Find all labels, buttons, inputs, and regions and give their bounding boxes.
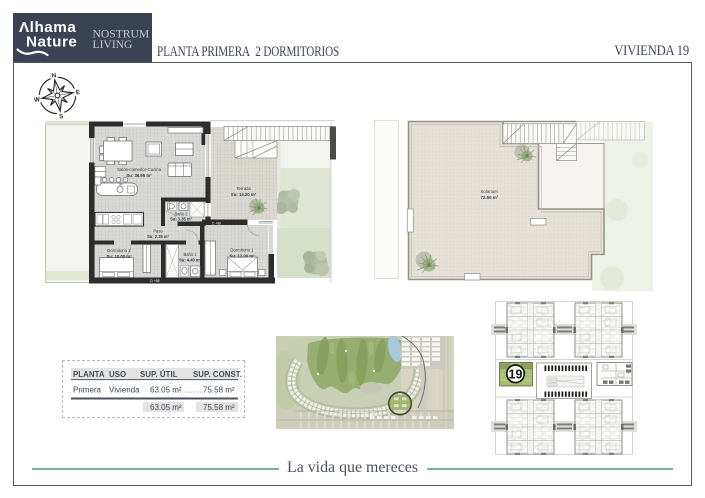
- svg-text:.............: .............: [175, 386, 204, 395]
- svg-text:Baño 1: Baño 1: [184, 252, 198, 257]
- svg-text:75.58 m²: 75.58 m²: [203, 403, 235, 412]
- svg-text:Nature: Nature: [26, 34, 77, 51]
- svg-text:Su: 10.00 m²: Su: 10.00 m²: [106, 254, 132, 259]
- svg-text:Paso: Paso: [153, 229, 163, 234]
- svg-text:Su: 12.00 m²: Su: 12.00 m²: [229, 253, 255, 258]
- svg-text:19: 19: [509, 368, 523, 382]
- svg-text:Solarium: Solarium: [481, 189, 499, 194]
- svg-text:72.50 m²: 72.50 m²: [481, 195, 499, 200]
- svg-text:Salón-comedor-Cocina: Salón-comedor-Cocina: [117, 167, 162, 172]
- svg-text:75.58 m²: 75.58 m²: [203, 386, 235, 395]
- svg-text:C +90: C +90: [212, 221, 221, 225]
- svg-text:Su: 4.40 m²: Su: 4.40 m²: [179, 258, 201, 263]
- svg-text:Primera: Primera: [73, 386, 102, 395]
- svg-text:SUP. ÚTIL: SUP. ÚTIL: [140, 370, 178, 379]
- svg-text:N: N: [51, 72, 57, 80]
- svg-text:Vivienda: Vivienda: [109, 386, 140, 395]
- svg-text:W: W: [34, 96, 41, 104]
- svg-text:PLANTA: PLANTA: [73, 370, 105, 379]
- svg-text:Terraza: Terraza: [236, 186, 251, 191]
- svg-text:SUP. CONST.: SUP. CONST.: [193, 370, 242, 379]
- svg-text:Dormitorio 1: Dormitorio 1: [230, 248, 254, 253]
- svg-text:USO: USO: [109, 370, 126, 379]
- svg-text:Su: 36.95 m²: Su: 36.95 m²: [126, 173, 152, 178]
- svg-text:LIVING: LIVING: [93, 38, 134, 51]
- svg-text:63.05 m²: 63.05 m²: [150, 403, 182, 412]
- svg-text:Su: 3.35 m²: Su: 3.35 m²: [170, 217, 192, 222]
- svg-text:E: E: [75, 89, 80, 97]
- svg-text:Dormitorio 2: Dormitorio 2: [107, 248, 131, 253]
- svg-text:Su: 2.35 m²: Su: 2.35 m²: [147, 234, 169, 239]
- svg-text:D +88: D +88: [150, 279, 159, 283]
- svg-text:Su: 14.20 m²: Su: 14.20 m²: [231, 192, 257, 197]
